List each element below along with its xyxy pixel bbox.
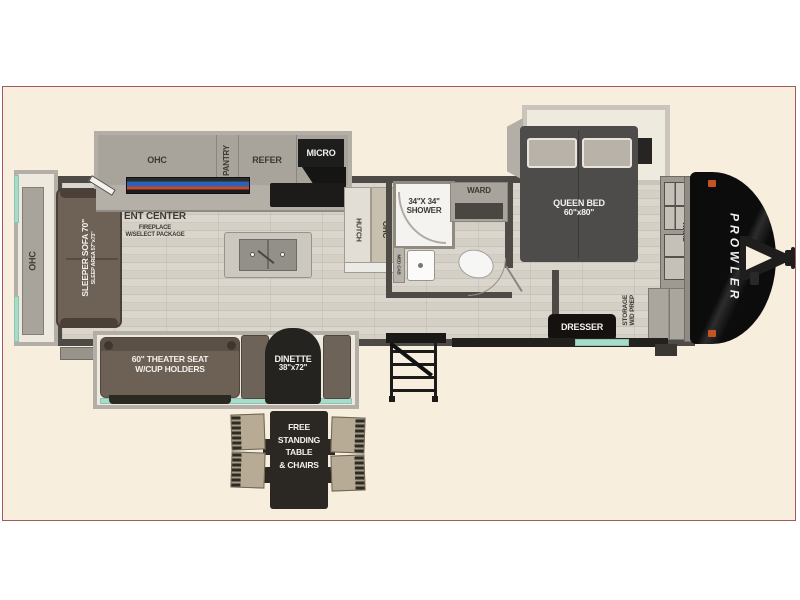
faucet-left (250, 252, 255, 257)
hutch-cabinet: HUTCH (344, 187, 371, 272)
storage-label-line2: W/D PREP (629, 295, 636, 326)
refer-label: REFER (252, 155, 282, 165)
tv-fireplace (126, 177, 250, 194)
table-label-line1: FREE (270, 423, 328, 433)
med-cab-label: MED CAB (396, 255, 401, 275)
chair-top-left (230, 413, 265, 450)
shower: 34"X 34" SHOWER (393, 181, 455, 249)
doorside-window (575, 339, 629, 346)
chair-top-right (330, 416, 365, 453)
dinette-table: DINETTE 38"x72" (265, 328, 321, 404)
hitch-coupler-bar (791, 247, 795, 269)
step-rail (390, 342, 433, 377)
free-standing-table: FREE STANDING TABLE & CHAIRS (270, 411, 328, 509)
microwave: MICRO (298, 139, 344, 167)
pantry-label: PANTRY (223, 145, 232, 176)
chair-bottom-right (330, 454, 365, 491)
dresser-label: DRESSER (561, 322, 603, 332)
fireplace-note-line1: FIREPLACE (96, 225, 214, 232)
bath-wall-bottom (386, 292, 512, 298)
doorside-wall-dark (452, 338, 668, 347)
entry-steps (388, 336, 440, 402)
brand-logo: PROWLER (727, 213, 740, 302)
table-label-line2: STANDING (270, 436, 328, 446)
bed-label-line2: 60"x80" (520, 208, 638, 218)
rear-ohc-cabinet: OHC (22, 187, 44, 335)
pillow-right (582, 138, 632, 168)
kitchen-ohc-label: OHC (147, 155, 166, 165)
table-label-line3: TABLE (270, 448, 328, 458)
cooktop (270, 183, 346, 207)
bath-ward-cabinet: WARD (450, 182, 508, 222)
front-corner-trim (655, 344, 677, 356)
rear-ohc-label: OHC (28, 251, 38, 270)
theater-footrest (109, 395, 231, 404)
med-cab: MED CAB (393, 247, 405, 283)
micro-label: MICRO (307, 148, 336, 158)
nightstand (638, 138, 652, 164)
chair-bottom-left (230, 451, 265, 488)
pillow-left (527, 138, 577, 168)
dinette-label-line2: 38"x72" (265, 364, 321, 373)
rear-slide-window-bottom (14, 296, 19, 342)
queen-bed: QUEEN BED 60"x80" (520, 126, 638, 262)
sofa-title: SLEEPER SOFA 70" (81, 219, 91, 297)
bath-ward-interior (455, 203, 503, 219)
theater-label-line2: W/CUP HOLDERS (101, 365, 239, 375)
rear-stabilizer (60, 347, 96, 360)
bath-sink (407, 250, 435, 281)
cup-holder-left (104, 341, 113, 350)
tongue-jack (750, 272, 759, 285)
faucet-right (280, 252, 285, 257)
storage-label-line1: STORAGE (622, 295, 629, 326)
bath-ward-label: WARD (451, 187, 507, 196)
dinette-bench-right (323, 335, 351, 399)
faucet-sprayer (258, 250, 275, 264)
ent-center-label: ENT CENTER (96, 211, 214, 222)
dresser: DRESSER (548, 314, 616, 341)
bath-wall-left (386, 182, 392, 298)
theater-seat: 60" THEATER SEAT W/CUP HOLDERS (100, 337, 240, 398)
hutch-label: HUTCH (354, 218, 362, 242)
kitchen-island (224, 232, 312, 278)
fireplace-note-line2: W/SELECT PACKAGE (96, 232, 214, 239)
double-sink (239, 239, 297, 271)
shower-label-line2: SHOWER (396, 207, 452, 216)
table-label-line4: & CHAIRS (270, 461, 328, 471)
rear-slide-window-top (14, 175, 19, 223)
kitchen-divider-3 (296, 135, 297, 185)
cup-holder-right (227, 341, 236, 350)
